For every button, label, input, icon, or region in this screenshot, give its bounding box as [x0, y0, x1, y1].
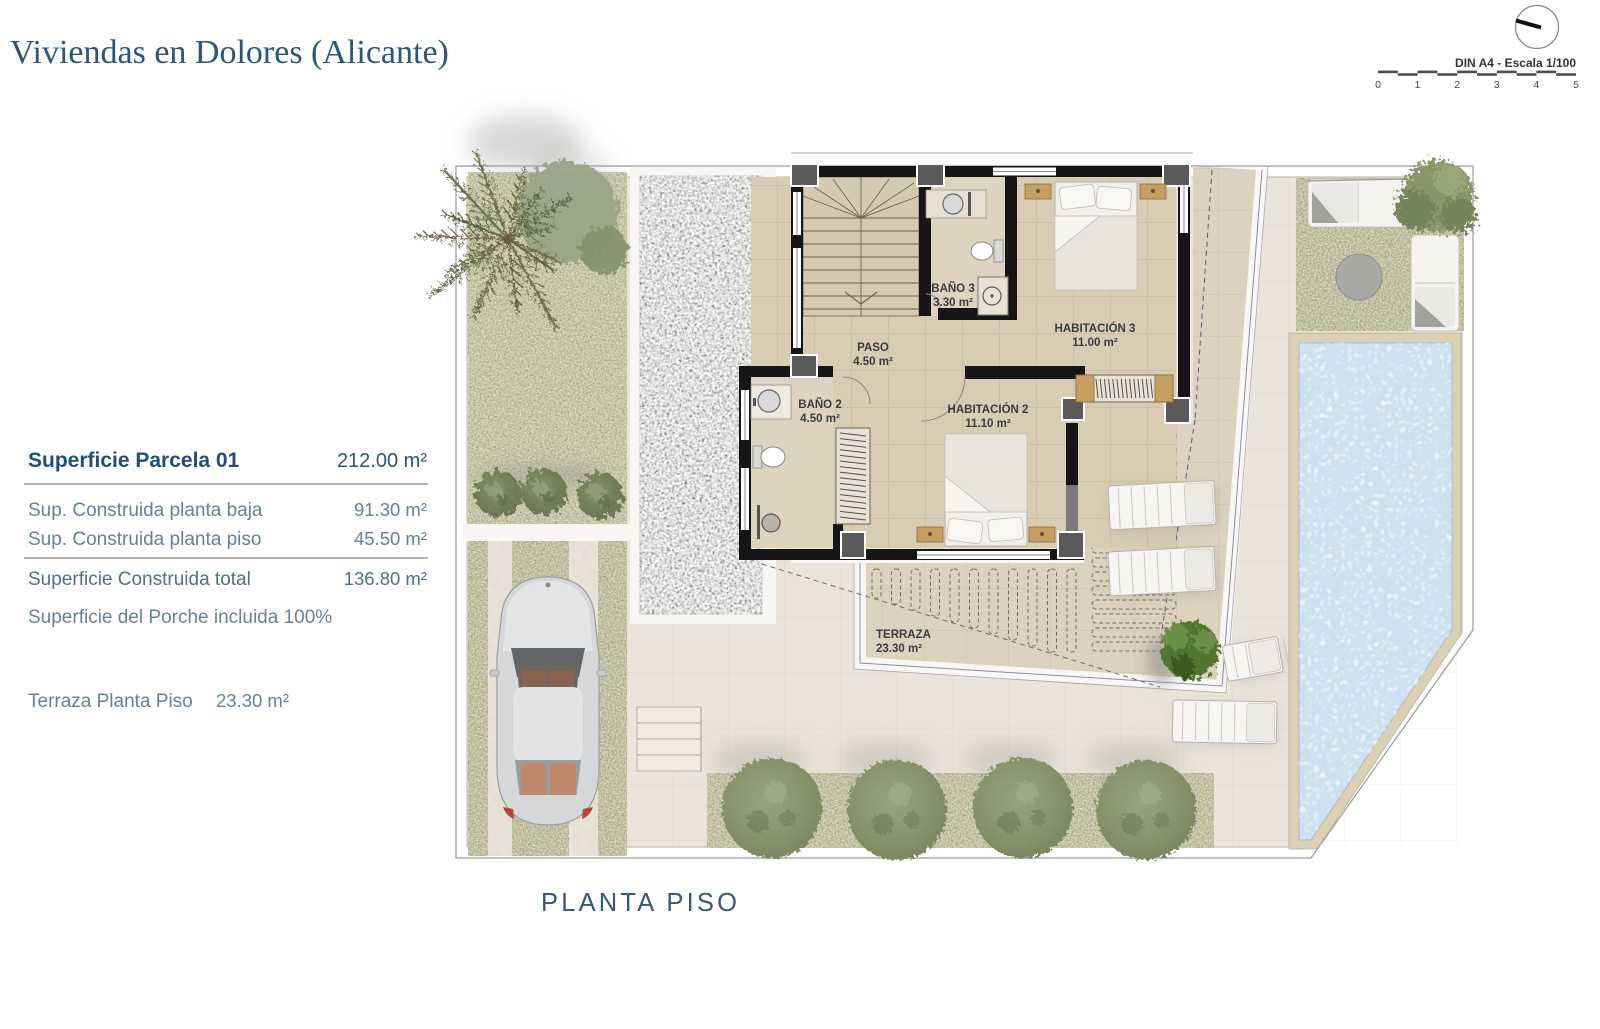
- svg-text:2: 2: [1454, 79, 1460, 91]
- svg-text:45.50 m²: 45.50 m²: [354, 528, 427, 549]
- svg-text:3.30 m²: 3.30 m²: [933, 297, 973, 309]
- svg-text:HABITACIÓN 2: HABITACIÓN 2: [948, 403, 1029, 416]
- svg-text:Viviendas en Dolores (Alicante: Viviendas en Dolores (Alicante): [10, 34, 449, 71]
- svg-text:Sup. Construida planta piso: Sup. Construida planta piso: [28, 529, 261, 550]
- svg-text:212.00 m²: 212.00 m²: [337, 450, 427, 472]
- svg-text:4.50 m²: 4.50 m²: [800, 413, 840, 425]
- svg-text:Sup. Construida planta baja: Sup. Construida planta baja: [28, 500, 263, 521]
- svg-text:1: 1: [1415, 79, 1421, 91]
- svg-text:4: 4: [1533, 79, 1539, 91]
- svg-text:PASO: PASO: [857, 342, 889, 354]
- svg-text:11.10 m²: 11.10 m²: [965, 418, 1011, 430]
- svg-text:Superficie Construida total: Superficie Construida total: [28, 569, 251, 590]
- svg-text:Terraza Planta Piso: Terraza Planta Piso: [28, 691, 193, 712]
- svg-text:HABITACIÓN 3: HABITACIÓN 3: [1055, 322, 1136, 335]
- svg-text:5: 5: [1573, 79, 1579, 91]
- svg-text:23.30 m²: 23.30 m²: [876, 643, 922, 655]
- svg-text:BAÑO 2: BAÑO 2: [798, 398, 841, 411]
- svg-text:23.30 m²: 23.30 m²: [216, 690, 289, 711]
- svg-text:11.00 m²: 11.00 m²: [1072, 337, 1118, 349]
- svg-text:0: 0: [1375, 79, 1381, 91]
- svg-text:91.30 m²: 91.30 m²: [354, 499, 427, 520]
- svg-text:136.80 m²: 136.80 m²: [344, 568, 427, 589]
- svg-text:BAÑO 3: BAÑO 3: [931, 282, 974, 295]
- svg-text:3: 3: [1494, 79, 1500, 91]
- svg-text:4.50 m²: 4.50 m²: [853, 356, 893, 368]
- svg-text:PLANTA PISO: PLANTA PISO: [541, 889, 740, 917]
- svg-text:TERRAZA: TERRAZA: [876, 629, 931, 641]
- svg-text:Superficie Parcela 01: Superficie Parcela 01: [28, 449, 240, 472]
- svg-text:Superficie del Porche incluida: Superficie del Porche incluida 100%: [28, 607, 332, 628]
- svg-text:DIN A4 - Escala 1/100: DIN A4 - Escala 1/100: [1455, 56, 1576, 70]
